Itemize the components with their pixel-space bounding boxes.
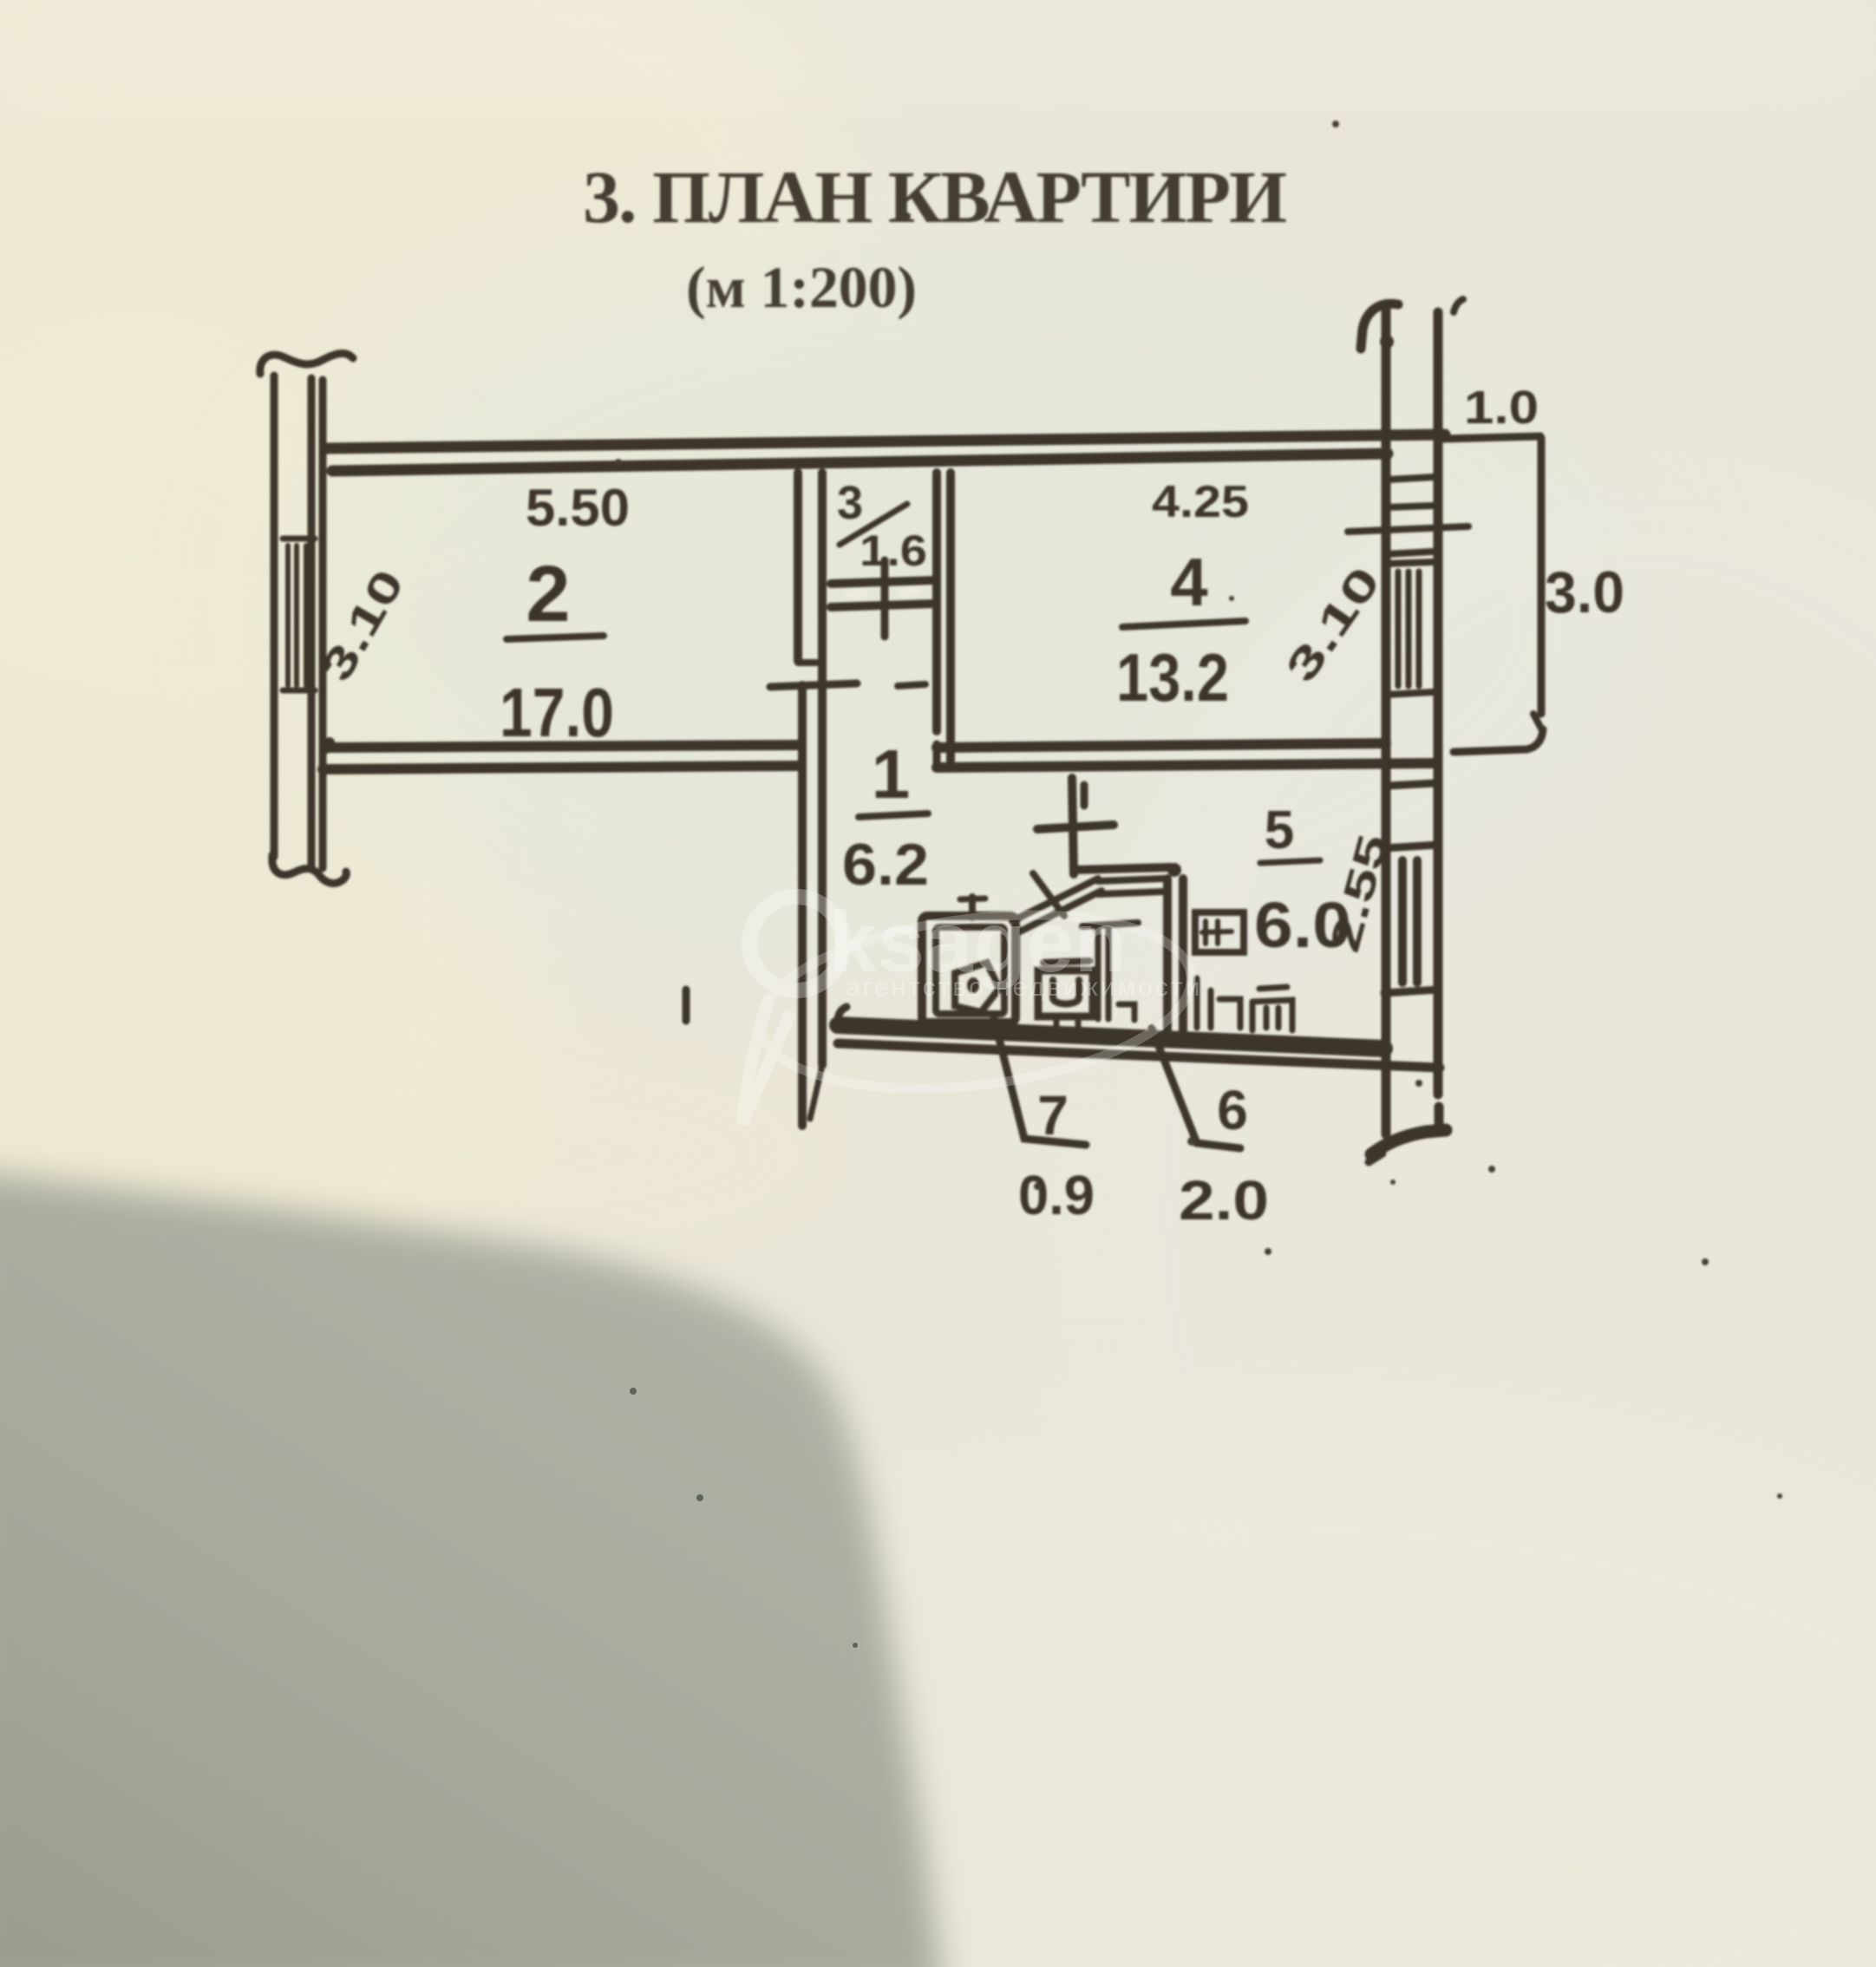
svg-text:1.0: 1.0 xyxy=(1464,382,1539,434)
svg-text:17.0: 17.0 xyxy=(500,674,614,751)
svg-text:3. ПЛАН КВАРТИРИ: 3. ПЛАН КВАРТИРИ xyxy=(583,155,1287,239)
svg-text:13.2: 13.2 xyxy=(1116,639,1229,716)
svg-text:агентство недвижимости: агентство недвижимости xyxy=(846,973,1202,1002)
svg-text:6: 6 xyxy=(1217,1079,1248,1141)
svg-text:1.6: 1.6 xyxy=(860,526,927,575)
svg-text:3: 3 xyxy=(837,477,863,529)
svg-text:3.0: 3.0 xyxy=(1545,559,1624,625)
svg-text:2.0: 2.0 xyxy=(1179,1169,1269,1232)
svg-text:2: 2 xyxy=(526,550,570,638)
svg-text:0.9: 0.9 xyxy=(1018,1164,1095,1226)
svg-text:7: 7 xyxy=(1037,1084,1069,1147)
svg-text:4: 4 xyxy=(1170,544,1207,620)
svg-text:5: 5 xyxy=(1265,801,1294,860)
svg-text:5.50: 5.50 xyxy=(526,479,630,537)
svg-text:4.25: 4.25 xyxy=(1152,477,1249,527)
svg-text:1: 1 xyxy=(872,735,911,813)
svg-text:(м 1:200): (м 1:200) xyxy=(686,254,917,320)
svg-text:6.2: 6.2 xyxy=(842,832,929,898)
